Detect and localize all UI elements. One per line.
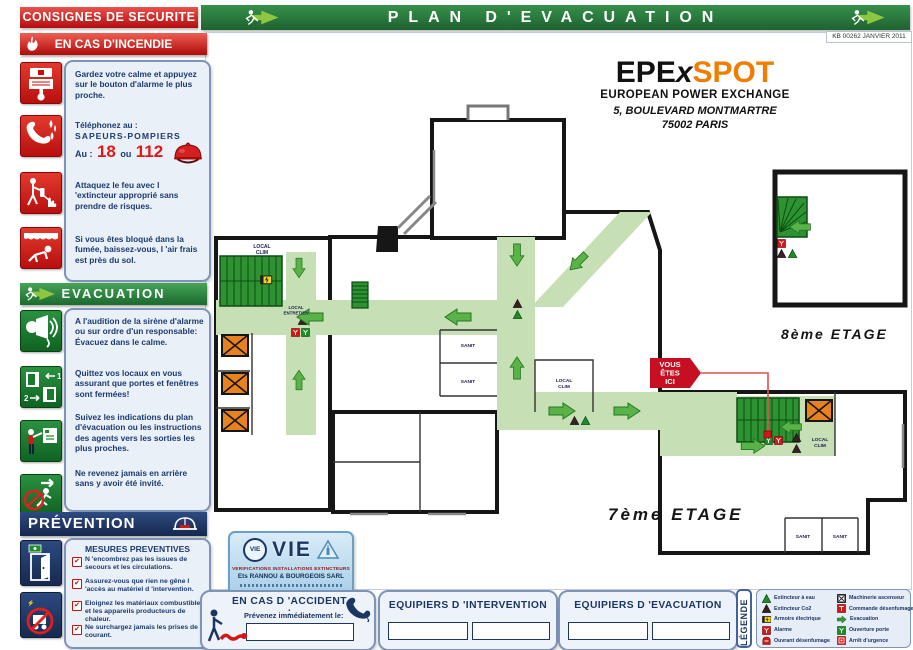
legend-label: Arrêt d'urgence: [849, 638, 888, 644]
ouverture-porte-icon: [837, 626, 846, 635]
floor8-label: 8ème ETAGE: [781, 326, 911, 342]
elevator-icon: [806, 400, 832, 421]
door-step-1: 1: [57, 372, 61, 381]
evacuation-name-field-2[interactable]: [652, 622, 730, 640]
stamp-contact-line: [240, 584, 342, 587]
stamp-company: Ets RANNOU & BOURGEOIS SARL: [230, 573, 352, 580]
incendie-ou-label: ou: [120, 149, 131, 159]
alarme-icon: [762, 626, 771, 635]
document-reference: KB 00262 JANVIER 2011: [826, 31, 912, 43]
emergency-number-112: 112: [136, 142, 163, 161]
legend-label: Extincteur Co2: [774, 606, 811, 612]
prevention-text-3: Eloignez les matériaux combustibles et l…: [85, 600, 205, 624]
certification-stamp: VIE VIE VERIFICATIONS INSTALLATIONS EXTI…: [228, 531, 354, 596]
floor-plan: LOCAL CLIM LOCAL ENTRETIEN SANIT SANIT L…: [213, 55, 913, 592]
evacuation-banner-label: EVACUATION: [61, 286, 165, 301]
alarme-icon: [292, 329, 300, 337]
corridor-lifts: [286, 252, 316, 435]
incendie-tel-who: SAPEURS-POMPIERS: [75, 131, 181, 142]
prevention-subtitle: MESURES PREVENTIVES: [66, 544, 209, 554]
accident-box: EN CAS D 'ACCIDENT : Prévenez immédiatem…: [200, 590, 376, 650]
alarm-button-icon: [20, 62, 62, 104]
incendie-instruction-3: Attaquez le feu avec l 'extincteur appro…: [75, 180, 203, 211]
running-man-icon: [849, 8, 889, 27]
alarme-icon: [778, 240, 786, 248]
running-man-icon: [24, 285, 58, 303]
legend-label: Armoire électrique: [774, 616, 821, 622]
evacuation-plan-poster: CONSIGNES DE SECURITE PLAN D'EVACUATION …: [0, 0, 913, 650]
evacuation-banner: EVACUATION: [20, 283, 207, 305]
legend-left-column: Extincteur à eau Extincteur Co2 Armoire …: [762, 593, 830, 646]
phone-fire-icon: [20, 115, 62, 157]
legend-label: Alarme: [774, 627, 792, 633]
exit-door-icon: [20, 540, 62, 586]
follow-plan-icon: [20, 420, 62, 462]
armoire-electrique-icon: [261, 276, 272, 284]
prevention-banner-label: PRÉVENTION: [28, 515, 136, 532]
evacuation-name-field-1[interactable]: [568, 622, 648, 640]
checkbox-icon: ✔: [72, 579, 82, 589]
evacuation-instruction-2: Quittez vos locaux en vous assurant que …: [75, 368, 204, 399]
firefighter-helmet-icon: [172, 140, 204, 168]
commande-desenfumage-icon: [837, 604, 846, 613]
legend-tab: LÉGENDE: [736, 589, 752, 648]
legend-label: Ouverture porte: [849, 627, 889, 633]
evacuation-instruction-1: A l'audition de la sirène d'alarme ou su…: [75, 316, 204, 347]
checkbox-icon: ✔: [72, 557, 82, 567]
prevention-text-4: Ne surchargez jamais les prises de coura…: [85, 624, 205, 640]
prevention-text-1: N 'encombrez pas les issues de secours e…: [85, 556, 205, 572]
evacuation-team-box: EQUIPIERS D 'EVACUATION: [558, 590, 738, 650]
legend-tab-label: LÉGENDE: [739, 599, 749, 646]
prevention-item-2: ✔ Assurez-vous que rien ne gêne l 'accès…: [72, 578, 205, 594]
checkbox-icon: ✔: [72, 625, 82, 635]
accident-subtitle: Prévenez immédiatement le:: [244, 611, 343, 620]
incendie-banner-label: EN CAS D'INCENDIE: [55, 37, 173, 51]
prevention-item-1: ✔ N 'encombrez pas les issues de secours…: [72, 556, 205, 572]
floor8-inset: [775, 172, 905, 305]
elevator-icon: [222, 410, 248, 431]
evacuation-panel: A l'audition de la sirène d'alarme ou su…: [64, 308, 211, 512]
wall-mass: [376, 226, 398, 252]
legend-panel: Extincteur à eau Extincteur Co2 Armoire …: [756, 589, 911, 648]
north-wing: [432, 120, 564, 238]
vie-wordmark: VIE: [272, 538, 312, 562]
room-label-clim: CLIM: [814, 443, 826, 449]
page-title: PLAN D'EVACUATION: [388, 9, 723, 26]
evacuation-instruction-3: Suivez les indications du plan d'évacuat…: [75, 412, 204, 453]
prevention-item-3: ✔ Eloignez les matériaux combustibles et…: [72, 600, 205, 624]
floor7-label: 7ème ETAGE: [608, 505, 808, 525]
vie-circle-logo: VIE: [243, 538, 267, 562]
evacuation-instruction-4: Ne revenez jamais en arrière sans y avoi…: [75, 468, 204, 489]
incendie-instruction-1: Gardez votre calme et appuyez sur le bou…: [75, 69, 203, 100]
room-label-sanit: SANIT: [833, 534, 847, 540]
prevention-banner: PRÉVENTION: [20, 512, 207, 536]
helmet-outline-icon: [172, 514, 198, 534]
phone-icon: [342, 594, 372, 622]
incendie-panel: Gardez votre calme et appuyez sur le bou…: [64, 60, 211, 282]
running-man-icon: [243, 8, 283, 27]
ouvrant-desenfumage-icon: [762, 636, 771, 645]
legend-label: Commande désenfumage: [849, 606, 913, 612]
staircase-small: [352, 282, 368, 308]
incendie-banner: EN CAS D'INCENDIE: [20, 33, 207, 55]
incendie-instruction-4: Si vous êtes bloqué dans la fumée, baiss…: [75, 234, 203, 265]
elevator-icon: [222, 373, 248, 394]
machinerie-ascenseur-icon: [837, 594, 846, 603]
incendie-au-label: Au :: [75, 149, 93, 159]
evacuation-team-title: EQUIPIERS D 'EVACUATION: [560, 600, 736, 611]
plan-title-banner: PLAN D'EVACUATION: [201, 5, 910, 30]
accident-contact-field[interactable]: [246, 623, 354, 641]
marker-text: ICI: [665, 377, 675, 386]
room-label-local: LOCAL: [812, 437, 829, 443]
prevention-panel: MESURES PREVENTIVES ✔ N 'encombrez pas l…: [64, 538, 211, 649]
emergency-number-18: 18: [97, 142, 116, 161]
alarme-icon: [775, 437, 783, 445]
no-heat-sources-icon: ⚡: [20, 592, 62, 638]
stamp-tagline: VERIFICATIONS INSTALLATIONS EXTINCTEURS: [230, 566, 352, 571]
door-step-2: 2: [24, 394, 29, 403]
close-doors-icon: 1 2: [20, 366, 62, 408]
room-label-sanit: SANIT: [461, 379, 475, 385]
room-label-local: LOCAL: [288, 305, 303, 310]
roof-notch: [468, 106, 508, 120]
legend-label: Machinerie ascenseur: [849, 595, 904, 601]
checkbox-icon: ✔: [72, 601, 82, 611]
siren-icon: [20, 310, 62, 352]
first-aid-icon: [205, 606, 249, 646]
intervention-name-field-1[interactable]: [388, 622, 468, 640]
extincteur-eau-icon: [762, 594, 771, 603]
legend-label: Ouvrant désenfumage: [774, 638, 830, 644]
vie-triangle-logo: [317, 540, 339, 560]
room-label-clim: CLIM: [558, 384, 570, 390]
intervention-team-box: EQUIPIERS D 'INTERVENTION: [378, 590, 558, 650]
ouverture-porte-icon: [302, 329, 310, 337]
room-label-clim: CLIM: [256, 250, 268, 256]
extincteur-co2-icon: [762, 604, 771, 613]
stay-low-icon: [20, 227, 62, 269]
intervention-title: EQUIPIERS D 'INTERVENTION: [380, 600, 556, 611]
prevention-item-4: ✔ Ne surchargez jamais les prises de cou…: [72, 624, 205, 640]
room-label-local: LOCAL: [556, 378, 573, 384]
no-return-icon: [20, 474, 62, 516]
legend-right-column: Machinerie ascenseur Commande désenfumag…: [837, 593, 913, 646]
prevention-text-2: Assurez-vous que rien ne gêne l 'accès a…: [85, 578, 205, 594]
evacuation-arrow-icon: [837, 615, 847, 624]
staircase-west: [220, 256, 282, 306]
arret-urgence-icon: [837, 636, 846, 645]
room-label-entretien: ENTRETIEN: [284, 311, 309, 316]
consignes-banner: CONSIGNES DE SECURITE: [20, 7, 198, 28]
flame-icon: [25, 35, 40, 53]
elevator-icon: [222, 335, 248, 356]
incendie-tel-intro: Téléphonez au :: [75, 120, 138, 130]
intervention-name-field-2[interactable]: [472, 622, 550, 640]
extinguisher-person-icon: [20, 172, 62, 214]
room-label-sanit: SANIT: [796, 534, 810, 540]
legend-label: Evacuation: [850, 616, 878, 622]
legend-label: Extincteur à eau: [774, 595, 815, 601]
room-label-sanit: SANIT: [461, 343, 475, 349]
armoire-electrique-icon: [762, 615, 771, 624]
svg-text:⚡: ⚡: [27, 599, 34, 607]
